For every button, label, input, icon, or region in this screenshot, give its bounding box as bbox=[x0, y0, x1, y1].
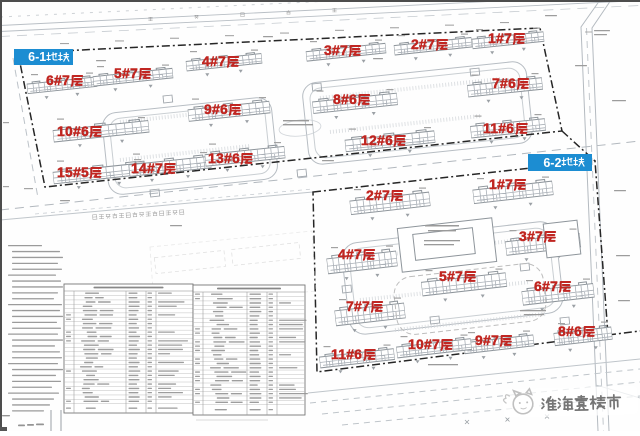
svg-text:6-2: 6-2 bbox=[543, 156, 561, 170]
svg-text:2#7: 2#7 bbox=[411, 36, 435, 52]
svg-text:12#6: 12#6 bbox=[361, 132, 393, 148]
svg-text:13#6: 13#6 bbox=[208, 150, 240, 166]
svg-text:1#7: 1#7 bbox=[489, 176, 513, 192]
svg-text:2#7: 2#7 bbox=[366, 187, 390, 203]
svg-text:10#6: 10#6 bbox=[57, 123, 89, 139]
svg-text:6#7: 6#7 bbox=[46, 72, 70, 88]
svg-text:14#7: 14#7 bbox=[131, 160, 163, 176]
svg-text:3#7: 3#7 bbox=[324, 42, 348, 58]
svg-text:8#6: 8#6 bbox=[558, 323, 582, 339]
svg-text:9#6: 9#6 bbox=[204, 101, 228, 117]
svg-text:7#6: 7#6 bbox=[492, 75, 516, 91]
svg-text:6#7: 6#7 bbox=[534, 278, 558, 294]
svg-text:9#7: 9#7 bbox=[475, 332, 499, 348]
svg-text:5#7: 5#7 bbox=[439, 268, 463, 284]
svg-text:4#7: 4#7 bbox=[202, 53, 226, 69]
svg-text:3#7: 3#7 bbox=[519, 228, 543, 244]
svg-text:7#7: 7#7 bbox=[346, 298, 370, 314]
svg-text:6-1: 6-1 bbox=[28, 50, 46, 64]
svg-text:11#6: 11#6 bbox=[331, 346, 362, 362]
svg-text:8#6: 8#6 bbox=[333, 91, 357, 107]
svg-text:11#6: 11#6 bbox=[483, 120, 514, 136]
svg-text:5#7: 5#7 bbox=[114, 65, 138, 81]
svg-text:4#7: 4#7 bbox=[338, 246, 362, 262]
svg-text:1#7: 1#7 bbox=[488, 30, 512, 46]
svg-text:15#5: 15#5 bbox=[57, 164, 89, 180]
svg-text:10#7: 10#7 bbox=[408, 336, 440, 352]
